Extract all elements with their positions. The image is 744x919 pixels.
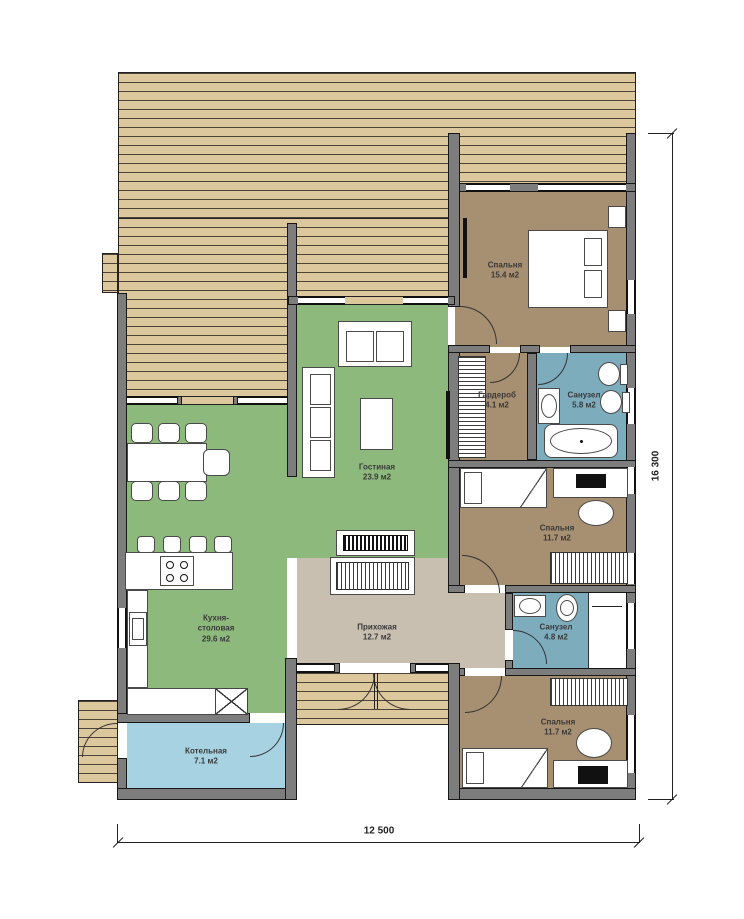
room-label-kitchen: Кухня-столовая 29.6 м2 — [189, 613, 243, 644]
window-shower-right — [626, 603, 636, 649]
room-name: Спальня — [541, 718, 576, 728]
dining-chair — [185, 423, 207, 443]
sofa — [302, 367, 335, 478]
room-area: 5.8 м2 — [568, 401, 601, 411]
floor-plan: 12 500 16 300 Спальня 15.4 м2 Гостиная 2… — [0, 0, 744, 919]
dimension-line-bottom — [118, 842, 640, 843]
office-chair — [578, 500, 614, 526]
room-name: Спальня — [540, 524, 575, 534]
window-bedroom1-right — [626, 280, 636, 314]
room-area: 15.4 м2 — [488, 271, 523, 281]
room-label-wardrobe: Гардероб 4.1 м2 — [478, 391, 516, 412]
dining-chair — [131, 481, 153, 501]
deck-terrace-top-left — [118, 72, 448, 218]
bar-stool — [137, 536, 155, 553]
room-area: 4.1 м2 — [478, 401, 516, 411]
wall-porch-left — [285, 658, 297, 800]
room-label-bathroom-1: Санузел 5.8 м2 — [568, 391, 601, 412]
tv-living-room — [446, 391, 450, 459]
stove — [160, 556, 194, 586]
dining-chair — [131, 423, 153, 443]
bathroom2-sink-bowl — [519, 598, 541, 614]
room-area: 23.9 м2 — [359, 473, 395, 483]
window-living-1 — [298, 296, 345, 305]
room-label-bedroom-1: Спальня 15.4 м2 — [488, 261, 523, 282]
floor-hallway-nook — [448, 593, 505, 668]
pillow — [584, 270, 602, 298]
window-bedroom1-top-2 — [538, 183, 626, 192]
floor-shower-room — [588, 593, 626, 668]
room-name: Кухня-столовая — [189, 613, 243, 634]
bar-stool — [214, 536, 232, 553]
deck-step — [102, 253, 118, 293]
bidet — [600, 390, 622, 414]
room-label-bathroom-2: Санузел 4.8 м2 — [540, 623, 573, 644]
window-kitchen-terrace-1 — [127, 396, 177, 405]
bathroom1-sink-bowl — [541, 394, 557, 418]
wall-row1-c — [570, 345, 636, 353]
dimension-line-right — [672, 133, 673, 800]
dining-chair — [185, 481, 207, 501]
room-label-bedroom-3: Спальня 11.7 м2 — [541, 718, 576, 739]
dimension-width-label: 12 500 — [364, 826, 395, 837]
deck-edge-line — [118, 218, 448, 219]
toilet — [598, 362, 620, 386]
dining-armchair — [203, 449, 230, 476]
deck-terrace-top-right — [448, 72, 636, 183]
room-name: Спальня — [488, 261, 523, 271]
blanket-fold — [521, 748, 548, 788]
wall-row1-b — [520, 345, 540, 353]
wardrobe-cabinet — [550, 552, 628, 584]
dining-chair — [158, 481, 180, 501]
sofa — [338, 321, 412, 367]
room-name: Санузел — [540, 623, 573, 633]
room-name: Гардероб — [478, 391, 516, 401]
stove-burner — [166, 561, 174, 569]
wardrobe-cabinet — [550, 678, 628, 706]
wall-entry-frame-left — [334, 663, 340, 673]
room-area: 11.7 м2 — [540, 534, 575, 544]
fireplace-grate — [343, 535, 408, 551]
floor-kitchen-living-gap — [287, 477, 297, 558]
room-label-boiler: Котельная 7.1 м2 — [185, 747, 227, 768]
room-label-living: Гостиная 23.9 м2 — [359, 463, 395, 484]
stove-burner — [180, 561, 188, 569]
room-name: Гостиная — [359, 463, 395, 473]
entry-door-leaf-left — [374, 673, 375, 709]
entry-door-leaf-right — [377, 673, 378, 709]
pillow — [584, 238, 602, 266]
bathtub-drain — [580, 440, 583, 443]
room-area: 7.1 м2 — [185, 757, 227, 767]
window-hallway-2 — [416, 663, 448, 673]
room-area: 11.7 м2 — [541, 728, 576, 738]
room-label-hallway: Прихожая 12.7 м2 — [357, 623, 396, 644]
sofa-seat — [310, 407, 331, 438]
window-hallway-1 — [297, 663, 334, 673]
room-name: Котельная — [185, 747, 227, 757]
sofa-seat — [376, 331, 404, 362]
wall-bathroom2-left-a — [505, 593, 513, 630]
toilet-tank — [620, 364, 628, 385]
wall-left-upper — [117, 293, 127, 723]
bidet-tank — [622, 392, 630, 413]
wall-bedroom3-top-b — [505, 668, 636, 676]
room-area: 12.7 м2 — [357, 633, 396, 643]
terrace-door-living — [345, 296, 403, 305]
coffee-table — [360, 398, 393, 450]
wall-divider-upper — [448, 133, 460, 307]
wall-bedroom3-left — [448, 663, 460, 800]
tv-bedroom-1 — [463, 218, 467, 278]
wall-wardrobe-bath-sep — [527, 353, 537, 460]
window-kitchen-terrace-2 — [238, 396, 287, 405]
nightstand — [608, 310, 626, 332]
room-name: Прихожая — [357, 623, 396, 633]
window-bedroom1-top-1 — [466, 183, 510, 192]
window-living-2 — [403, 296, 448, 305]
wall-row1-a — [448, 345, 490, 353]
window-kitchen-left — [117, 608, 127, 648]
room-name: Санузел — [568, 391, 601, 401]
kitchen-counter-bottom — [127, 688, 216, 715]
nightstand — [608, 206, 626, 228]
kitchen-sink-basin — [132, 618, 144, 640]
wall-terrace-mid — [287, 223, 297, 477]
office-chair — [576, 728, 612, 758]
wall-row2 — [448, 460, 636, 468]
dining-chair — [158, 423, 180, 443]
computer — [578, 766, 608, 784]
sofa-seat — [310, 374, 331, 405]
sofa-seat — [346, 331, 374, 362]
bar-stool — [189, 536, 207, 553]
stove-burner — [180, 574, 188, 582]
wall-bottom-right — [448, 788, 636, 800]
dining-table — [127, 443, 207, 482]
sofa-seat — [310, 440, 331, 471]
room-area: 29.6 м2 — [189, 634, 243, 644]
wall-bedroom2-bottom-b — [505, 585, 636, 593]
room-label-bedroom-2: Спальня 11.7 м2 — [540, 524, 575, 545]
appliance-placeholder — [215, 688, 248, 715]
pillow — [464, 472, 482, 504]
deck-terrace-left — [118, 218, 288, 398]
blanket-fold — [520, 468, 547, 508]
terrace-door-kitchen — [182, 396, 233, 405]
deck-terrace-mid — [288, 218, 448, 296]
hallway-closet-hangers — [336, 562, 409, 590]
wall-bottom-left — [117, 788, 297, 800]
stove-burner — [166, 574, 174, 582]
dimension-height-label: 16 300 — [651, 451, 662, 482]
pillow — [466, 752, 484, 784]
toilet-seat — [560, 600, 574, 616]
bar-stool — [163, 536, 181, 553]
room-area: 4.8 м2 — [540, 633, 573, 643]
monitor — [576, 474, 606, 488]
shower-door-line — [592, 606, 622, 607]
